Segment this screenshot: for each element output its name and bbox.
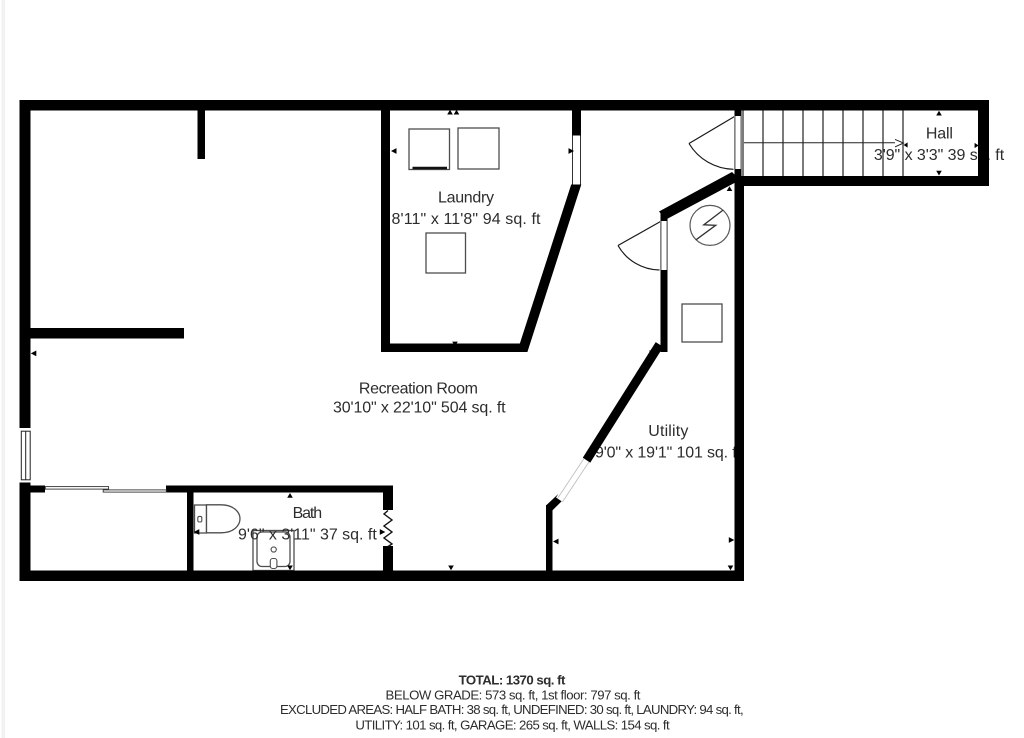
svg-text:BELOW GRADE: 573 sq. ft, 1st f: BELOW GRADE: 573 sq. ft, 1st floor: 797 …: [386, 688, 641, 703]
svg-text:9'0" x 19'1" 101 sq. ft: 9'0" x 19'1" 101 sq. ft: [595, 445, 742, 462]
svg-text:Hall: Hall: [926, 125, 953, 142]
svg-text:30'10" x 22'10" 504 sq. ft: 30'10" x 22'10" 504 sq. ft: [333, 400, 506, 417]
svg-text:Bath: Bath: [293, 505, 323, 522]
svg-text:TOTAL: 1370 sq. ft: TOTAL: 1370 sq. ft: [459, 673, 566, 688]
svg-text:9'6" x 3'11" 37 sq. ft: 9'6" x 3'11" 37 sq. ft: [238, 527, 377, 544]
svg-text:Recreation Room: Recreation Room: [359, 381, 478, 398]
svg-text:Laundry: Laundry: [438, 190, 494, 207]
svg-text:Utility: Utility: [648, 423, 688, 440]
svg-text:8'11" x 11'8" 94 sq. ft: 8'11" x 11'8" 94 sq. ft: [392, 211, 541, 228]
svg-text:EXCLUDED AREAS: HALF BATH: 38: EXCLUDED AREAS: HALF BATH: 38 sq. ft, UN…: [280, 702, 744, 717]
svg-text:UTILITY: 101 sq. ft, GARAGE: 2: UTILITY: 101 sq. ft, GARAGE: 265 sq. ft,…: [355, 717, 670, 732]
